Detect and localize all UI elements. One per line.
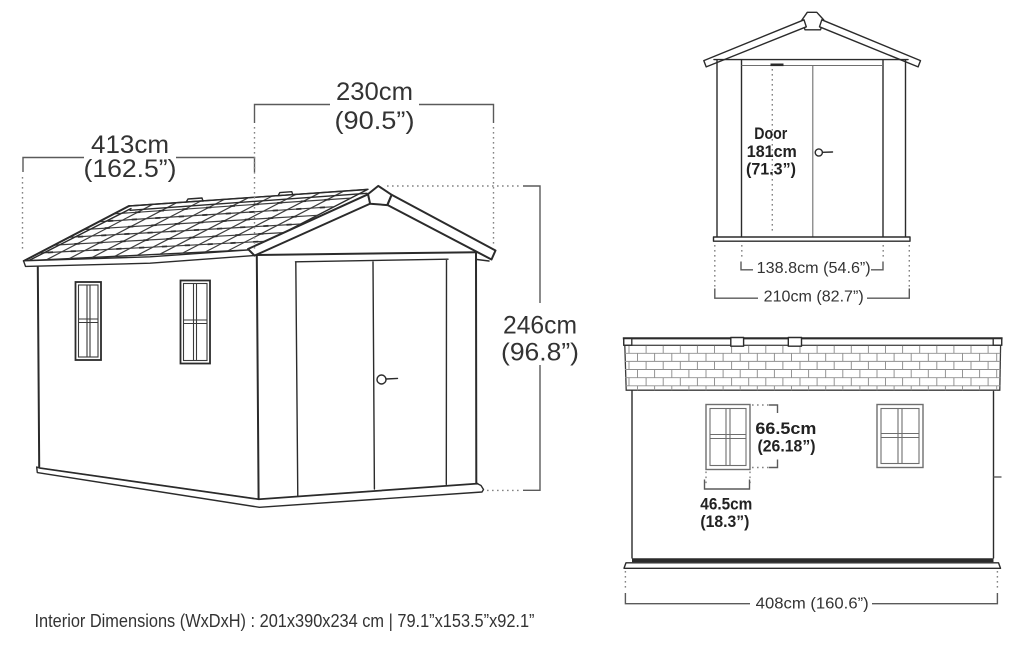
svg-text:(162.5”): (162.5”) (84, 155, 177, 183)
svg-text:181cm: 181cm (747, 142, 797, 161)
svg-text:46.5cm: 46.5cm (700, 495, 752, 514)
svg-text:66.5cm: 66.5cm (755, 419, 816, 438)
svg-text:(96.8”): (96.8”) (501, 339, 579, 367)
svg-text:(26.18”): (26.18”) (758, 437, 816, 456)
svg-text:138.8cm (54.6”): 138.8cm (54.6”) (757, 260, 871, 277)
svg-text:Door: Door (754, 124, 787, 143)
svg-text:210cm (82.7”): 210cm (82.7”) (764, 289, 864, 306)
svg-text:(71.3”): (71.3”) (746, 160, 796, 179)
svg-text:246cm: 246cm (503, 312, 577, 340)
svg-text:(18.3”): (18.3”) (700, 512, 749, 531)
svg-text:230cm: 230cm (336, 78, 413, 106)
svg-text:(90.5”): (90.5”) (335, 107, 415, 135)
svg-text:Interior Dimensions (WxDxH) :: Interior Dimensions (WxDxH) : 201x390x23… (35, 611, 535, 631)
svg-text:408cm (160.6”): 408cm (160.6”) (756, 596, 869, 613)
